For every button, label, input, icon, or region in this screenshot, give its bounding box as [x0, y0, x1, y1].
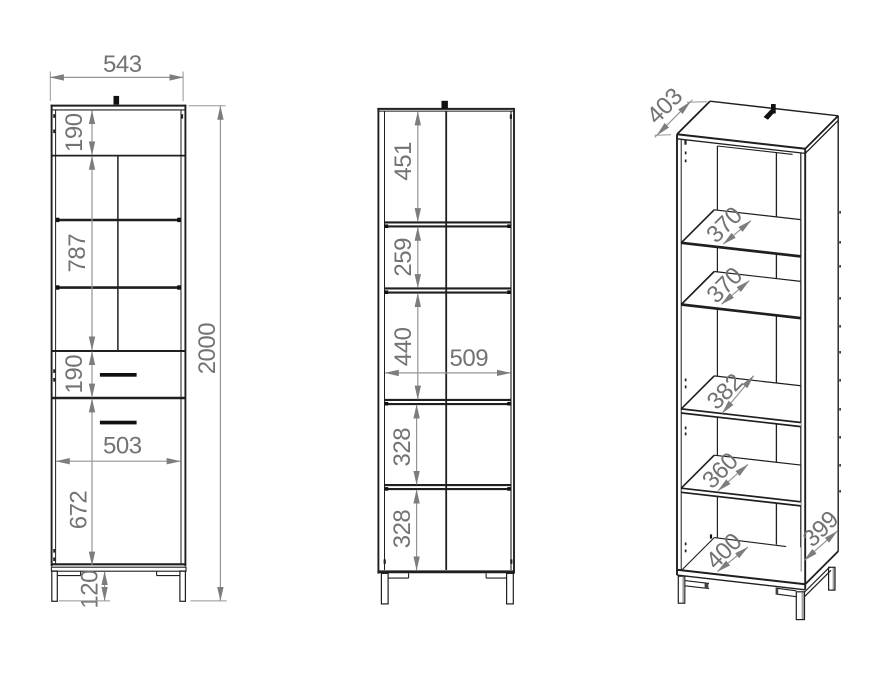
svg-text:328: 328 [389, 510, 416, 549]
svg-text:509: 509 [450, 345, 489, 372]
svg-text:190: 190 [61, 355, 88, 394]
svg-text:543: 543 [103, 51, 142, 78]
svg-text:259: 259 [390, 238, 417, 277]
svg-text:2000: 2000 [194, 323, 221, 375]
svg-text:120: 120 [76, 570, 103, 609]
svg-text:451: 451 [390, 142, 417, 181]
svg-text:503: 503 [103, 433, 142, 460]
svg-text:440: 440 [390, 327, 417, 366]
svg-text:672: 672 [65, 491, 92, 530]
svg-text:328: 328 [389, 428, 416, 467]
svg-text:190: 190 [61, 113, 88, 152]
svg-text:787: 787 [64, 234, 91, 273]
